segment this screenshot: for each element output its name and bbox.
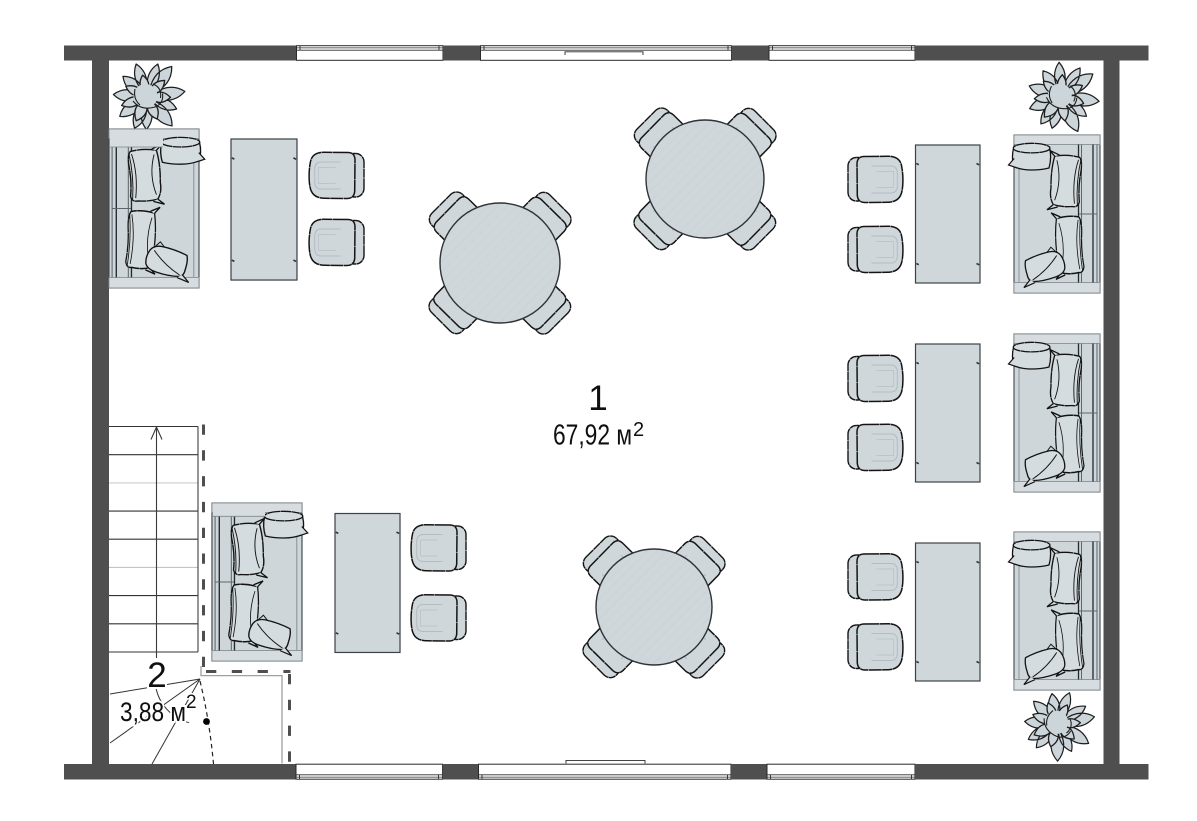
svg-text:3,88 м: 3,88 м <box>120 697 186 727</box>
svg-text:2: 2 <box>633 419 644 441</box>
svg-text:67,92 м: 67,92 м <box>553 420 632 452</box>
svg-text:2: 2 <box>186 692 197 713</box>
svg-text:1: 1 <box>588 379 607 418</box>
svg-text:2: 2 <box>147 656 166 695</box>
